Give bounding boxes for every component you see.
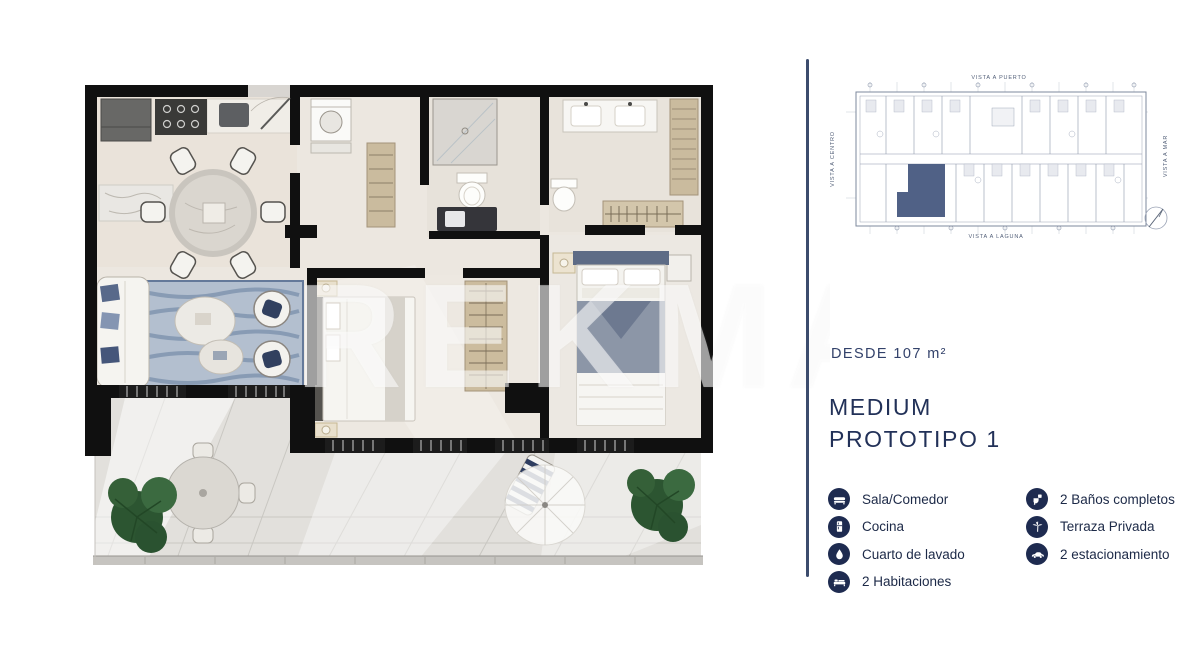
- building-key-plan: VISTA A PUERTO VISTA A LAGUNA VISTA A CE…: [826, 68, 1172, 240]
- palm-tree-icon: [1026, 516, 1048, 538]
- table-centerpiece: [203, 203, 225, 223]
- sofa-pillow: [100, 346, 119, 364]
- entry-threshold: [248, 85, 290, 97]
- label-vista-centro: VISTA A CENTRO: [830, 131, 836, 187]
- car-icon: [1026, 543, 1048, 565]
- label-vista-laguna: VISTA A LAGUNA: [968, 234, 1023, 240]
- area-label: DESDE 107 m²: [831, 346, 947, 362]
- armchair: [254, 341, 290, 377]
- feature-column-right: 2 Baños completos Terraza Privada 2 esta…: [1026, 488, 1194, 571]
- feature-terraza: Terraza Privada: [1026, 516, 1194, 538]
- title-line-2: PROTOTIPO 1: [829, 423, 1001, 455]
- toilet: [551, 179, 577, 211]
- bed-icon: [828, 571, 850, 593]
- feature-estacionamiento: 2 estacionamiento: [1026, 543, 1194, 565]
- nightstand: [667, 255, 691, 281]
- bathroom-1: [433, 99, 497, 231]
- feature-banos: 2 Baños completos: [1026, 488, 1194, 510]
- pillow: [624, 269, 660, 285]
- sofa-icon: [828, 488, 850, 510]
- kitchen-sink: [219, 103, 249, 127]
- feature-label: Sala/Comedor: [862, 492, 948, 507]
- vertical-divider: [806, 59, 809, 577]
- feature-label: Cuarto de lavado: [862, 547, 965, 562]
- armchair: [254, 291, 290, 327]
- sofa-pillow: [100, 312, 120, 330]
- fridge-icon: [828, 516, 850, 538]
- label-vista-mar: VISTA A MAR: [1163, 135, 1169, 177]
- compass-icon: [1145, 207, 1167, 229]
- page-title: MEDIUM PROTOTIPO 1: [829, 391, 1001, 455]
- sofa-pillow: [100, 284, 120, 302]
- wardrobe: [670, 99, 698, 195]
- label-vista-puerto: VISTA A PUERTO: [971, 75, 1026, 81]
- laundry-room: [311, 99, 351, 153]
- feature-column-left: Sala/Comedor Cocina Cuarto de lavado 2 H…: [828, 488, 1013, 598]
- feature-cuarto-lavado: Cuarto de lavado: [828, 543, 1013, 565]
- toilet-icon: [1026, 488, 1048, 510]
- feature-habitaciones: 2 Habitaciones: [828, 571, 1013, 593]
- bed-duvet: [577, 373, 665, 425]
- feature-cocina: Cocina: [828, 516, 1013, 538]
- bed-throw: [385, 297, 405, 421]
- apartment-floorplan: [85, 85, 725, 577]
- refrigerator: [101, 99, 151, 141]
- bed-headboard: [573, 251, 669, 265]
- feature-label: 2 estacionamiento: [1060, 547, 1170, 562]
- feature-label: Terraza Privada: [1060, 519, 1155, 534]
- flyer-page: REKMAR: [0, 0, 1200, 671]
- water-drop-icon: [828, 543, 850, 565]
- stove: [155, 99, 207, 135]
- living-room: [97, 277, 303, 391]
- pillow: [326, 335, 340, 361]
- feature-label: 2 Baños completos: [1060, 492, 1175, 507]
- pillow: [326, 303, 340, 329]
- pillow: [582, 269, 618, 285]
- feature-sala-comedor: Sala/Comedor: [828, 488, 1013, 510]
- feature-label: 2 Habitaciones: [862, 574, 951, 589]
- linen-closet: [367, 143, 395, 227]
- feature-label: Cocina: [862, 519, 904, 534]
- toilet: [457, 173, 487, 208]
- title-line-1: MEDIUM: [829, 391, 1001, 423]
